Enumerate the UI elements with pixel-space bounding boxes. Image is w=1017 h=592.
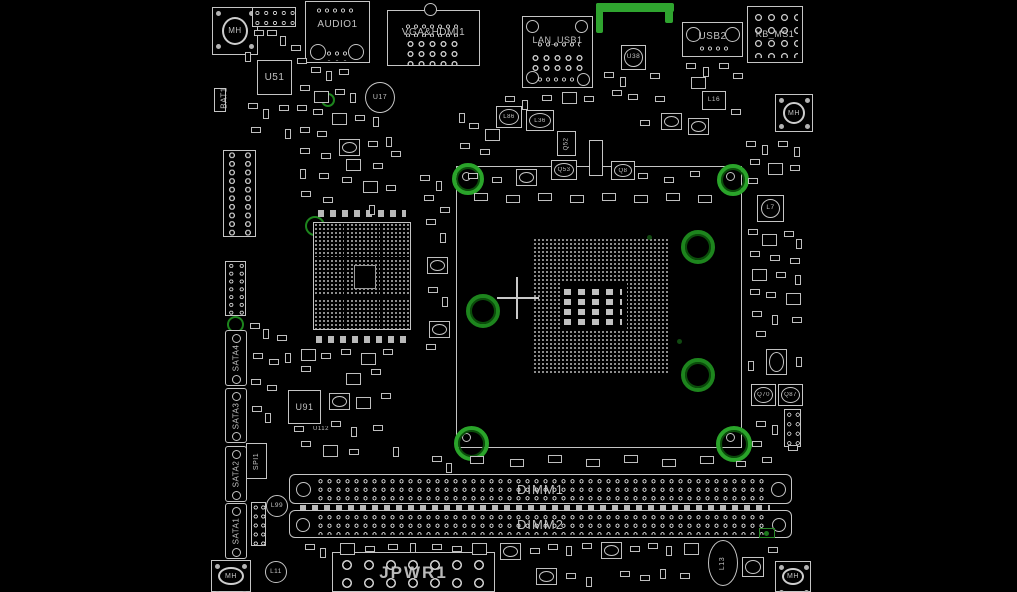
smd-part — [429, 321, 450, 338]
smd-part — [736, 461, 746, 467]
smd-part — [342, 177, 352, 183]
spi-label: SPI1 — [253, 452, 260, 469]
mounting-hole-label: MH — [776, 95, 812, 131]
smd-part — [602, 193, 616, 201]
smd-part — [427, 257, 448, 274]
bga-channel — [344, 223, 347, 329]
battery-label: BAT1 — [221, 87, 229, 108]
smd-part — [766, 292, 776, 298]
smd-part — [660, 569, 666, 579]
smd-part — [584, 96, 594, 102]
q70-label: Q70 — [752, 385, 775, 405]
mounting-hole-label: MH — [213, 8, 257, 54]
smd-part — [686, 63, 696, 69]
smd-part — [350, 93, 356, 103]
smd-part — [323, 445, 338, 457]
crosshair — [497, 297, 539, 299]
u112-label: U112 — [310, 425, 332, 433]
smd-part — [269, 359, 279, 365]
spi-label-wrap: SPI1 — [247, 444, 266, 478]
smd-part — [620, 77, 626, 87]
inductor-l13[interactable]: L13 — [708, 540, 738, 586]
pin-header[interactable] — [252, 7, 296, 27]
smd-part — [746, 141, 756, 147]
smd-part — [628, 94, 638, 100]
smd-part — [373, 163, 383, 169]
smd-part — [313, 109, 323, 115]
u38-label: U38 — [622, 46, 645, 69]
mosfet-q52[interactable]: Q52 — [557, 131, 576, 156]
smd-part — [253, 353, 263, 359]
smd-part — [485, 129, 500, 141]
sata3-label-wrap: SATA3 — [226, 389, 246, 442]
smd-part — [750, 251, 760, 257]
smd-part — [648, 543, 658, 549]
atx-power-connector[interactable]: JPWR1 — [332, 552, 495, 592]
smd-part — [620, 571, 630, 577]
smd-part — [267, 30, 277, 36]
smd-part — [388, 544, 398, 550]
smd-part — [688, 118, 709, 135]
smd-part — [351, 427, 357, 437]
l13-label: L13 — [720, 556, 727, 569]
smd-part — [733, 73, 743, 79]
smd-part — [719, 63, 729, 69]
smd-part — [640, 120, 650, 126]
smd-part — [703, 67, 709, 77]
smd-part — [666, 546, 672, 556]
smd-part — [731, 109, 741, 115]
smd-part — [446, 463, 452, 473]
smd-part — [794, 147, 800, 157]
inductor-l11[interactable]: L11 — [265, 561, 287, 583]
smd-part — [410, 543, 416, 553]
smd-part — [752, 269, 767, 281]
smd-part — [762, 457, 772, 463]
inductor-l16[interactable]: L16 — [702, 91, 726, 110]
smd-part — [291, 45, 301, 51]
smd-part — [251, 379, 261, 385]
smd-part — [294, 426, 304, 432]
smd-part — [566, 573, 576, 579]
ic-u91[interactable]: U91 — [288, 390, 321, 424]
smd-part — [530, 548, 540, 554]
smd-part — [691, 77, 706, 89]
bga-channel — [314, 295, 410, 298]
highlight-mark — [764, 531, 769, 536]
l13-label-wrap: L13 — [709, 541, 737, 585]
smd-part — [346, 373, 361, 385]
smd-part — [640, 575, 650, 581]
smd-part — [323, 197, 333, 203]
mosfet-q87[interactable]: Q87 — [778, 384, 803, 406]
smd-part — [263, 329, 269, 339]
highlighted-hole — [681, 230, 715, 264]
sata2-label-wrap: SATA2 — [226, 447, 246, 501]
smd-part — [280, 36, 286, 46]
usb-pins — [530, 53, 586, 71]
highlighted-trace — [596, 3, 674, 12]
smd-part — [788, 445, 798, 451]
inductor-u38[interactable]: U38 — [621, 45, 646, 70]
audio-jack — [348, 44, 364, 60]
smd-part — [748, 178, 758, 184]
socket-center-caps — [564, 287, 622, 325]
smd-part — [795, 275, 801, 285]
smd-part — [297, 105, 307, 111]
smd-part — [248, 103, 258, 109]
dimm2-slot[interactable]: DIMM2 — [289, 510, 792, 538]
smd-part — [373, 425, 383, 431]
mounting-hole: MH — [775, 94, 813, 132]
smd-part — [361, 353, 376, 365]
smd-part — [349, 449, 359, 455]
smd-part — [522, 100, 528, 110]
smd-part — [756, 331, 766, 337]
smd-part — [335, 89, 345, 95]
smd-part — [369, 205, 375, 215]
smd-part — [492, 177, 502, 183]
smd-part — [363, 181, 378, 193]
smd-part — [796, 357, 802, 367]
smd-part — [368, 141, 378, 147]
smd-part — [329, 393, 350, 410]
smd-part — [762, 234, 777, 246]
smd-part — [300, 169, 306, 179]
jpwr-label: JPWR1 — [333, 553, 494, 591]
l86-label: L86 — [497, 107, 521, 127]
l36-label: L36 — [527, 111, 553, 130]
bga-channel — [314, 257, 410, 260]
smd-part — [326, 71, 332, 81]
smd-part — [432, 544, 442, 550]
smd-part — [538, 193, 552, 201]
chipset-bga[interactable] — [313, 222, 411, 330]
smd-part — [624, 455, 638, 463]
smd-part — [371, 369, 381, 375]
smd-part — [786, 293, 801, 305]
dimm1-slot[interactable]: DIMM1 — [289, 474, 792, 504]
usb2-pins — [698, 44, 728, 54]
smd-part — [251, 127, 261, 133]
highlighted-hole — [716, 426, 752, 462]
kb-ms-label: KB_MS1 — [748, 7, 802, 62]
lan-usb-connector[interactable]: LAN_USB1 — [522, 16, 593, 88]
smd-part — [420, 175, 430, 181]
smd-part — [542, 95, 552, 101]
smd-part — [748, 361, 754, 371]
smd-part — [277, 335, 287, 341]
vertical-part — [589, 140, 603, 176]
battery-label-wrap: BAT1 — [218, 76, 232, 120]
smd-part — [700, 456, 714, 464]
smd-part — [317, 131, 327, 137]
smd-part — [341, 349, 351, 355]
smd-part — [440, 207, 450, 213]
lan-usb-post — [577, 73, 590, 86]
sata4-label: SATA4 — [232, 345, 240, 372]
smd-part — [297, 58, 307, 64]
smd-part — [650, 73, 660, 79]
boardview-canvas[interactable]: MH MH MH MH AUDIO1 VGA&HDMI1 LAN_USB1 — [0, 0, 1017, 592]
smd-part — [386, 185, 396, 191]
smd-part — [562, 92, 577, 104]
smd-part — [690, 171, 700, 177]
mounting-hole: MH — [775, 561, 811, 592]
smd-part — [790, 258, 800, 264]
smd-part — [770, 255, 780, 261]
smd-part — [301, 349, 316, 361]
usb2-connector[interactable]: USB2 — [682, 22, 743, 57]
q87-label: Q87 — [779, 385, 802, 405]
smd-part — [548, 544, 558, 550]
l16-label: L16 — [703, 92, 725, 109]
crosshair — [516, 277, 518, 319]
smd-part — [506, 195, 520, 203]
l99-label: L99 — [267, 496, 287, 516]
smd-part — [468, 173, 478, 179]
l11-label: L11 — [266, 562, 286, 582]
smd-part — [393, 447, 399, 457]
pin-header[interactable] — [225, 261, 246, 316]
smd-part — [460, 143, 470, 149]
sata3-connector[interactable]: SATA3 — [225, 388, 247, 443]
smd-part — [750, 159, 760, 165]
smd-part — [245, 52, 251, 62]
sata3-label: SATA3 — [232, 402, 240, 429]
smd-part — [381, 393, 391, 399]
sata4-connector[interactable]: SATA4 — [225, 330, 247, 386]
smd-part — [655, 96, 665, 102]
mounting-hole-label: MH — [776, 562, 810, 591]
mosfet-q53[interactable]: Q53 — [551, 160, 577, 180]
mosfet-q70[interactable]: Q70 — [751, 384, 776, 406]
smd-part — [752, 311, 762, 317]
smd-part — [750, 289, 760, 295]
smd-part — [601, 542, 622, 559]
audio-pins — [325, 49, 349, 61]
highlighted-hole — [452, 163, 484, 195]
sata1-connector[interactable]: SATA1 — [225, 503, 247, 559]
smd-part — [331, 421, 341, 427]
smd-part — [586, 577, 592, 587]
inductor — [742, 557, 764, 577]
smd-part — [756, 421, 766, 427]
mounting-hole-label: MH — [212, 561, 250, 591]
smd-part — [778, 141, 788, 147]
smd-part — [263, 109, 269, 119]
ic-u51[interactable]: U51 — [257, 60, 292, 95]
smd-part — [762, 145, 768, 155]
smd-part — [428, 287, 438, 293]
smd-part — [772, 315, 778, 325]
highlighted-trace — [665, 10, 673, 23]
smd-part — [265, 413, 271, 423]
smd-part — [666, 193, 680, 201]
smd-part — [452, 546, 462, 552]
sata2-connector[interactable]: SATA2 — [225, 446, 247, 502]
smd-part — [698, 195, 712, 203]
smd-part — [752, 441, 762, 447]
smd-part — [301, 366, 311, 372]
dimm1-label: DIMM1 — [290, 475, 791, 503]
smd-part — [470, 456, 484, 464]
inductor-l99[interactable]: L99 — [266, 495, 288, 517]
smd-part — [346, 159, 361, 171]
smd-part — [365, 546, 375, 552]
hdmi-pins — [405, 39, 461, 65]
smd-part — [373, 117, 379, 127]
q8-label: Q8 — [612, 162, 634, 179]
inductor-l7[interactable]: L7 — [757, 195, 784, 222]
smd-part — [638, 173, 648, 179]
smd-part — [776, 272, 786, 278]
audio-jack — [310, 44, 326, 60]
smd-part — [426, 344, 436, 350]
highlighted-hole — [466, 294, 500, 328]
smd-part — [285, 129, 291, 139]
bga-center — [354, 265, 376, 289]
smd-part — [314, 91, 329, 103]
smd-part — [254, 30, 264, 36]
smd-part — [424, 195, 434, 201]
smd-part — [796, 239, 802, 249]
smd-part — [510, 459, 524, 467]
smd-part — [516, 169, 537, 186]
kb-ms-connector[interactable]: KB_MS1 — [747, 6, 803, 63]
bga-channel — [380, 223, 383, 329]
audio-connector[interactable]: AUDIO1 — [305, 1, 370, 63]
highlighted-hole — [717, 164, 749, 196]
smd-part — [285, 353, 291, 363]
q52-label-wrap: Q52 — [558, 132, 575, 155]
l7-label: L7 — [758, 196, 783, 221]
smd-part — [252, 406, 262, 412]
sata1-label-wrap: SATA1 — [226, 504, 246, 558]
highlighted-part — [759, 528, 775, 538]
vga-hdmi-connector[interactable]: VGA&HDMI1 — [387, 10, 480, 66]
smd-part — [566, 546, 572, 556]
smd-part — [321, 153, 331, 159]
highlight-mark — [677, 339, 682, 344]
smd-part — [474, 193, 488, 201]
highlight-mark — [647, 235, 652, 240]
smd-part — [305, 544, 315, 550]
smd-part — [440, 233, 446, 243]
smd-part — [684, 543, 699, 555]
sata2-label: SATA2 — [232, 461, 240, 488]
smd-part — [768, 163, 783, 175]
q52-label: Q52 — [564, 137, 570, 150]
smd-part — [664, 177, 674, 183]
smd-part — [472, 543, 487, 555]
smd-part — [250, 323, 260, 329]
smd-part — [301, 441, 311, 447]
smd-part — [586, 459, 600, 467]
smd-part — [768, 547, 778, 553]
smd-part — [432, 456, 442, 462]
lan-usb-post — [526, 71, 539, 84]
dimm2-label: DIMM2 — [290, 511, 791, 537]
smd-part — [784, 231, 794, 237]
smd-part — [426, 219, 436, 225]
smd-part — [630, 546, 640, 552]
inductor-l36[interactable]: L36 — [526, 110, 554, 131]
smd-part — [469, 123, 479, 129]
mosfet-q8[interactable]: Q8 — [611, 161, 635, 180]
smd-part — [459, 113, 465, 123]
highlighted-trace — [596, 3, 603, 33]
smd-part — [500, 543, 521, 560]
capacitor-row — [316, 336, 408, 343]
smd-part — [279, 105, 289, 111]
smd-part — [300, 148, 310, 154]
smd-part — [355, 115, 365, 121]
capacitor-row — [318, 210, 406, 217]
smd-part — [604, 72, 614, 78]
smd-part — [340, 543, 355, 555]
highlighted-hole — [681, 358, 715, 392]
usb-front-header[interactable] — [251, 502, 266, 546]
smd-part — [321, 353, 331, 359]
smd-part — [792, 317, 802, 323]
spi-header[interactable]: SPI1 — [246, 443, 267, 479]
smd-part — [339, 139, 360, 156]
q53-label: Q53 — [552, 161, 576, 179]
smd-part — [766, 349, 787, 375]
mounting-hole: MH — [211, 560, 251, 592]
smd-part — [680, 573, 690, 579]
smd-part — [436, 181, 442, 191]
smd-part — [570, 195, 584, 203]
smd-part — [391, 151, 401, 157]
smd-part — [480, 149, 490, 155]
smd-part — [383, 349, 393, 355]
smd-part — [505, 96, 515, 102]
pin-header[interactable] — [784, 409, 801, 447]
smd-part — [311, 67, 321, 73]
smd-part — [300, 127, 310, 133]
smd-part — [356, 397, 371, 409]
smd-part — [339, 69, 349, 75]
smd-part — [319, 173, 329, 179]
front-panel-header[interactable] — [223, 150, 256, 237]
smd-part — [582, 543, 592, 549]
smd-part — [320, 548, 326, 558]
smd-part — [442, 297, 448, 307]
smd-part — [332, 113, 347, 125]
sata1-label: SATA1 — [232, 518, 240, 545]
u17-label: U17 — [366, 83, 394, 112]
sata4-label-wrap: SATA4 — [226, 331, 246, 385]
smd-part — [548, 455, 562, 463]
smd-part — [772, 425, 778, 435]
smd-part — [536, 568, 557, 585]
smd-part — [300, 85, 310, 91]
smd-part — [790, 165, 800, 171]
ic-u17[interactable]: U17 — [365, 82, 395, 113]
smd-part — [267, 385, 277, 391]
inductor-body — [745, 560, 761, 574]
smd-part — [634, 195, 648, 203]
smd-part — [661, 113, 682, 130]
smd-part — [386, 137, 392, 147]
smd-part — [301, 191, 311, 197]
inductor-l86[interactable]: L86 — [496, 106, 522, 128]
u51-label: U51 — [258, 61, 291, 94]
u91-label: U91 — [289, 391, 320, 423]
smd-part — [612, 90, 622, 96]
